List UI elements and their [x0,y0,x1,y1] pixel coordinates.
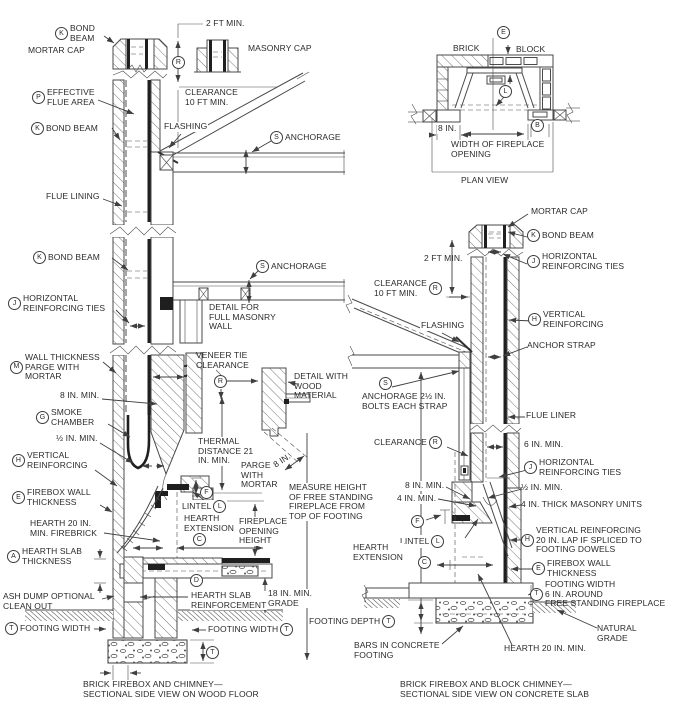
label-hearth-20: HEARTH 20 IN. MIN. FIREBRICK [30,519,97,538]
key-r-top: R [172,56,185,69]
label-bond-beam-cap: KBOND BEAM [55,24,95,43]
label-mortar-cap: MORTAR CAP [28,46,85,56]
label-plan-width: WIDTH OF FIREPLACE OPENING [450,140,545,159]
label-8in-min: 8 IN. MIN. [60,391,99,401]
label-firebox-wall: EFIREBOX WALL THICKNESS [12,488,91,507]
label-r-vertical-reinf: HVERTICAL REINFORCING [528,310,604,329]
label-r-flue-liner: FLUE LINER [526,411,576,421]
label-r-bars: BARS IN CONCRETE FOOTING [354,641,440,660]
key-l-plan: L [499,85,512,98]
label-r-6in-min: 6 IN. MIN. [524,440,563,450]
key-j-icon: J [8,297,21,310]
key-t-icon: T [5,622,18,635]
label-flue-lining: FLUE LINING [46,192,100,202]
label-r-hearth-20: HEARTH 20 IN. MIN. [504,644,586,654]
label-anchorage-1: SANCHORAGE [270,131,341,144]
label-r-mortar-cap: MORTAR CAP [531,207,588,217]
label-plan-block: BLOCK [516,45,545,55]
label-r-half-in: ½ IN. MIN. [521,483,563,493]
label-plan-view-title: PLAN VIEW [461,176,508,186]
label-plan-brick: BRICK [453,44,479,54]
label-horizontal-ties: JHORIZONTAL REINFORCING TIES [8,294,105,313]
label-r-natural-grade: NATURAL GRADE [597,624,637,643]
label-detail-wood: DETAIL WITH WOOD MATERIAL [294,372,348,401]
key-f-left: F [200,486,213,499]
label-r-firebox-wall: EFIREBOX WALL THICKNESS [532,559,611,578]
key-m-icon: M [10,361,23,374]
label-ash-dump: ASH DUMP OPTIONAL CLEAN OUT [3,592,95,611]
label-r-2ft: 2 FT MIN. [424,254,463,264]
key-k-icon: K [55,27,68,40]
key-t-depth-left: T [206,646,219,659]
label-smoke-chamber: GSMOKE CHAMBER [36,408,94,427]
key-d-left: D [190,574,203,587]
label-r-clearance-10ft: CLEARANCE 10 FT MIN.R [374,279,442,298]
label-r-4in-units: 4 IN. THICK MASONRY UNITS [521,500,642,510]
label-veneer-tie: VENEER TIE CLEARANCE [196,351,249,370]
label-half-in-min: ½ IN. MIN. [56,434,98,444]
key-f-right: F [411,515,424,528]
label-hearth-slab: AHEARTH SLAB THICKNESS [7,547,82,566]
label-2ft-min: 2 FT MIN. [206,19,245,29]
key-p-icon: P [32,91,45,104]
label-wall-thickness: MWALL THICKNESS PARGE WITH MORTAR [10,353,100,382]
label-detail-full-masonry: DETAIL FOR FULL MASONRY WALL [209,303,276,332]
label-anchorage-2: SANCHORAGE [256,260,327,273]
label-r-hearth-extension: HEARTH EXTENSION [352,543,404,562]
caption-left-view: BRICK FIREBOX AND CHIMNEY— SECTIONAL SID… [83,680,259,699]
label-footing-width-right: FOOTING WIDTHT [208,623,293,636]
label-r-lintel: LINTELL [399,535,445,548]
label-flashing: FLASHING [163,122,208,132]
label-lintel-left: LINTELL [181,500,227,513]
key-b-plan: B [531,119,544,132]
caption-right-view: BRICK FIREBOX AND BLOCK CHIMNEY— SECTION… [400,680,589,699]
label-measure-height: MEASURE HEIGHT OF FREE STANDING FIREPLAC… [288,483,374,521]
key-a-icon: A [7,550,20,563]
key-r-veneer: R [214,375,227,388]
key-c-left: C [193,533,206,546]
label-footing-depth: FOOTING DEPTHT [308,615,396,628]
label-r-clearance: CLEARANCER [374,436,442,449]
label-opening-height: FIREPLACE OPENING HEIGHT [238,517,288,546]
label-slab-reinforcement: HEARTH SLAB REINFORCEMENT [190,591,267,610]
key-e-plan: E [497,26,510,39]
label-r-ties-low: JHORIZONTAL REINFORCING TIES [524,458,621,477]
label-vertical-reinforcing: HVERTICAL REINFORCING [12,451,88,470]
label-r-anchor-strap: ANCHOR STRAP [527,341,596,351]
key-e-icon: E [12,491,25,504]
label-footing-width-left: TFOOTING WIDTH [5,622,90,635]
label-18in-grade: 18 IN. MIN. GRADE [267,589,313,608]
label-r-footing-width: TFOOTING WIDTH 6 IN. AROUND FREE STANDIN… [530,580,665,609]
label-r-bond-beam: KBOND BEAM [527,229,594,242]
label-parge-mortar: PARGE WITH MORTAR [240,461,279,490]
label-plan-8in: 8 IN. [437,124,457,134]
key-g-icon: G [36,411,49,424]
chimney-construction-diagram: KBOND BEAM MORTAR CAP 2 FT MIN. MASONRY … [0,0,692,724]
label-r-flashing: FLASHING [420,321,465,331]
key-s-right: S [379,377,392,390]
label-bond-beam-2: KBOND BEAM [33,251,100,264]
label-r-ties-top: JHORIZONTAL REINFORCING TIES [527,252,624,271]
label-r-vert-lap: HVERTICAL REINFORCING 20 IN. LAP IF SPLI… [521,526,642,555]
label-bond-beam-1: KBOND BEAM [31,122,98,135]
label-masonry-cap: MASONRY CAP [248,44,312,54]
label-r-8in-min: 8 IN. MIN. [404,481,445,491]
label-hearth-extension-left: HEARTH EXTENSION [183,514,235,533]
label-r-4in-min: 4 IN. MIN. [396,494,437,504]
key-c-right: C [418,556,431,569]
label-r-anchorage-bolts: ANCHORAGE 2½ IN. BOLTS EACH STRAP [362,392,448,411]
label-effective-flue-area: PEFFECTIVE FLUE AREA [32,88,95,107]
key-h-icon: H [12,454,25,467]
label-clearance-10ft: CLEARANCE 10 FT MIN. [185,88,238,107]
